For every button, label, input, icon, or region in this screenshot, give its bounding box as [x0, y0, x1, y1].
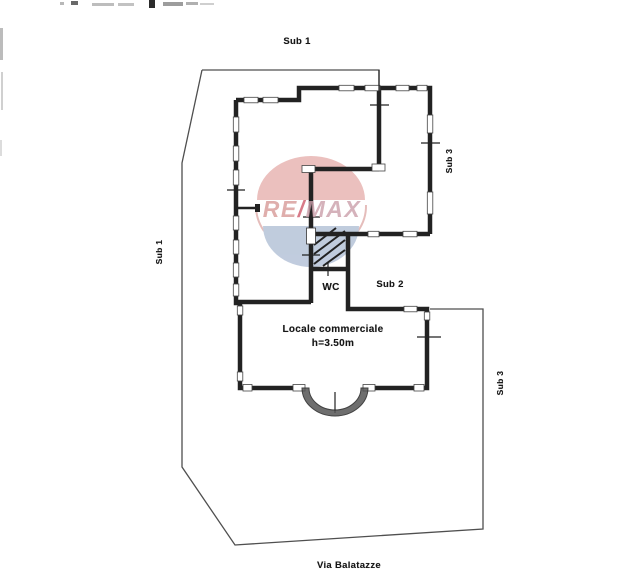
- label-room-height: h=3.50m: [258, 338, 408, 350]
- watermark-max: MAX: [306, 196, 362, 222]
- floor-plan-drawing: [0, 0, 619, 577]
- parcel-boundary: [182, 70, 483, 545]
- label-sub2: Sub 2: [370, 279, 410, 291]
- label-sub3-upper: Sub 3: [439, 141, 459, 181]
- watermark-slash: /: [298, 196, 306, 222]
- floor-plan-page: RE/MAX Sub 1 Sub 1 Sub 3 Sub 2 WC Sub 3 …: [0, 0, 619, 577]
- scan-artifacts: [0, 0, 214, 156]
- remax-watermark-text: RE/MAX: [253, 199, 371, 219]
- label-sub1-top: Sub 1: [277, 36, 317, 48]
- label-wc: WC: [311, 282, 351, 294]
- watermark-re: RE: [263, 196, 298, 222]
- label-sub1-left: Sub 1: [149, 232, 169, 272]
- label-room-name: Locale commerciale: [258, 324, 408, 336]
- label-street: Via Balatazze: [289, 560, 409, 572]
- label-sub3-lower: Sub 3: [490, 363, 510, 403]
